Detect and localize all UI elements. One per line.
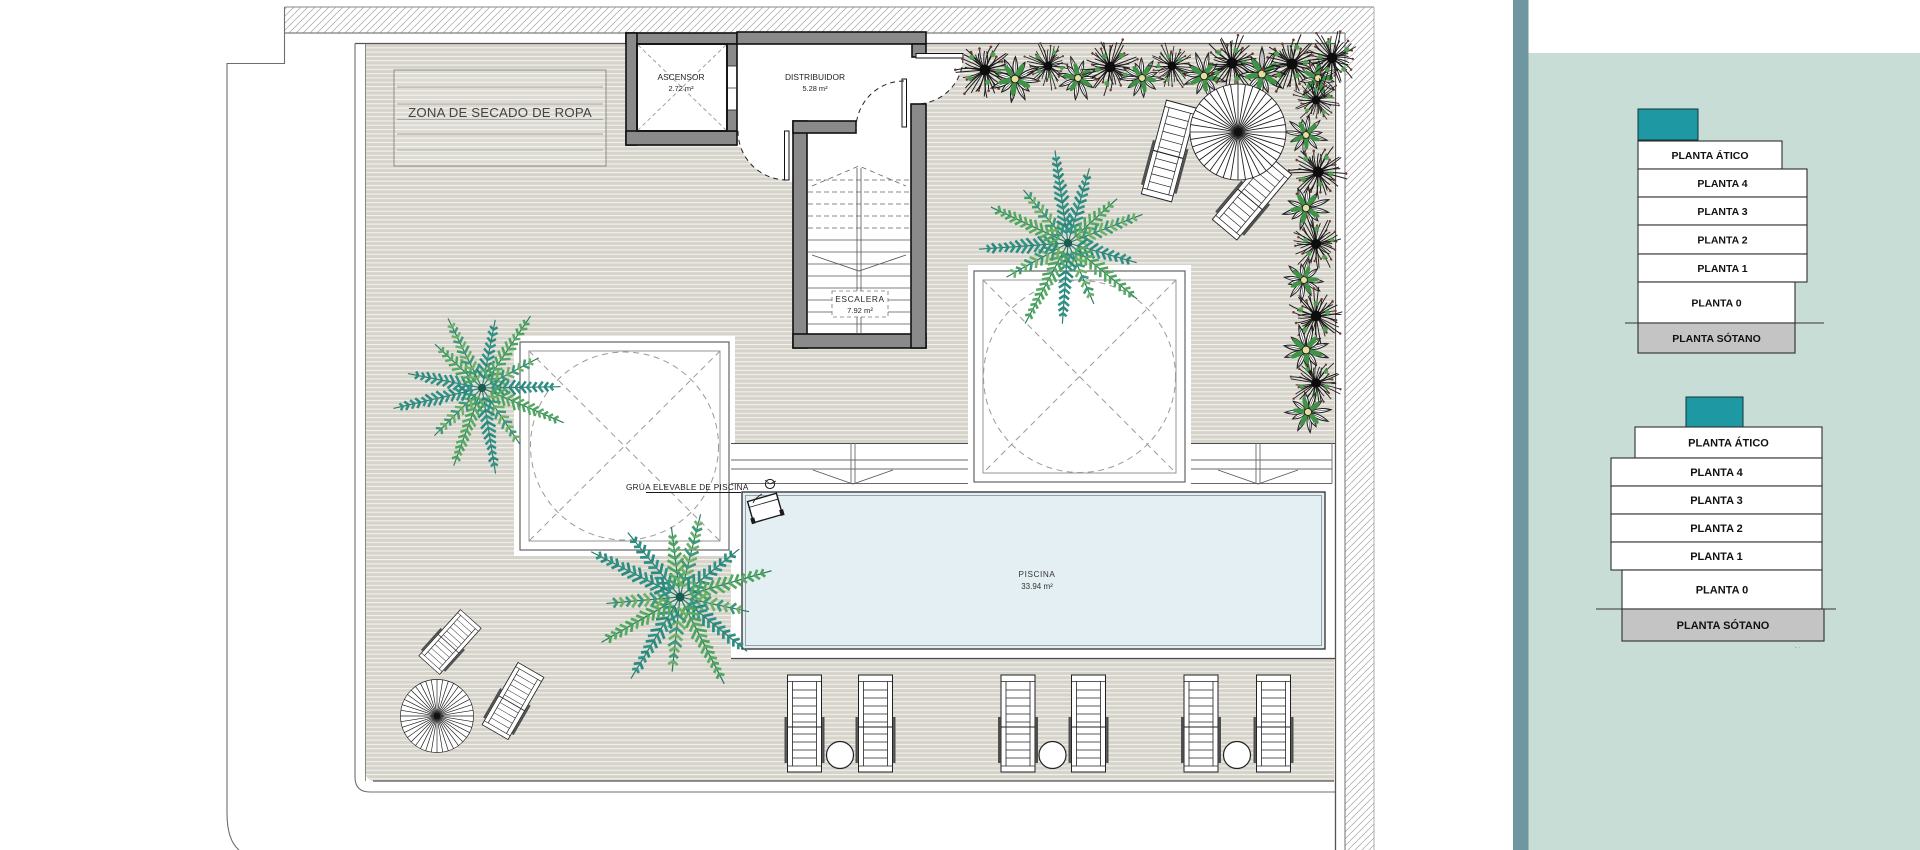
svg-text:PLANTA 4: PLANTA 4 [1697, 178, 1747, 190]
svg-text:DISTRIBUIDOR: DISTRIBUIDOR [785, 72, 845, 82]
svg-text:ZONA DE SECADO DE ROPA: ZONA DE SECADO DE ROPA [408, 105, 592, 120]
svg-text:PLANTA SÓTANO: PLANTA SÓTANO [1672, 332, 1760, 345]
svg-text:PLANTA 2: PLANTA 2 [1690, 523, 1743, 535]
svg-text:PLANTA 4: PLANTA 4 [1690, 467, 1743, 479]
svg-text:5.28 m²: 5.28 m² [802, 84, 828, 93]
svg-text:PLANTA 1: PLANTA 1 [1697, 263, 1747, 275]
svg-text:PLANTA 3: PLANTA 3 [1697, 206, 1747, 218]
svg-text:PLANTA ÁTICO: PLANTA ÁTICO [1688, 437, 1769, 450]
svg-text:PLANTA SÓTANO: PLANTA SÓTANO [1677, 619, 1770, 632]
svg-text:ASCENSOR: ASCENSOR [657, 72, 704, 82]
svg-text:PLANTA 1: PLANTA 1 [1690, 551, 1743, 563]
svg-text:PLANTA 3: PLANTA 3 [1690, 495, 1743, 507]
svg-text:PLANTA 0: PLANTA 0 [1691, 297, 1741, 309]
svg-text:PLANTA ÁTICO: PLANTA ÁTICO [1672, 149, 1749, 162]
svg-text:33.94 m²: 33.94 m² [1021, 582, 1053, 591]
svg-text:- ·: - · [1795, 645, 1801, 651]
svg-text:GRÚA ELEVABLE DE PISCINA: GRÚA ELEVABLE DE PISCINA [626, 482, 749, 492]
svg-text:2.72 m²: 2.72 m² [668, 84, 694, 93]
svg-text:PLANTA 2: PLANTA 2 [1697, 234, 1747, 246]
svg-text:PLANTA 0: PLANTA 0 [1696, 585, 1749, 597]
svg-text:7.92 m²: 7.92 m² [847, 306, 873, 315]
svg-text:ESCALERA: ESCALERA [835, 294, 884, 304]
svg-text:PISCINA: PISCINA [1019, 570, 1056, 579]
